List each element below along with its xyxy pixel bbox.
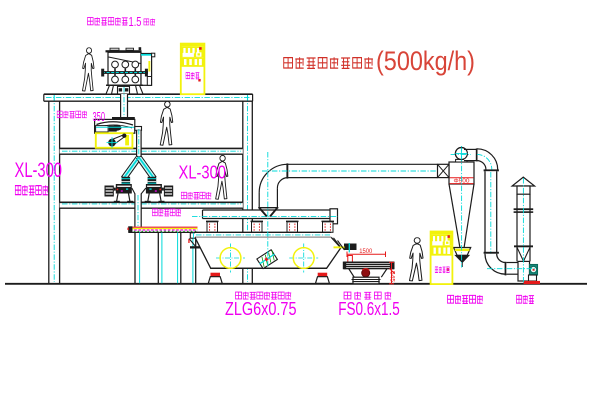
- svg-text:545: 545: [388, 271, 395, 283]
- svg-text:1500: 1500: [359, 248, 373, 255]
- svg-text:XL-300: XL-300: [15, 159, 63, 182]
- svg-text:XL-300: XL-300: [179, 162, 227, 182]
- svg-text:1.5: 1.5: [129, 15, 142, 29]
- svg-text:350: 350: [93, 109, 106, 124]
- svg-text:ZLG6x0.75: ZLG6x0.75: [225, 299, 297, 319]
- svg-text:FS0.6x1.5: FS0.6x1.5: [338, 299, 400, 319]
- svg-text:(500kg/h): (500kg/h): [376, 46, 475, 76]
